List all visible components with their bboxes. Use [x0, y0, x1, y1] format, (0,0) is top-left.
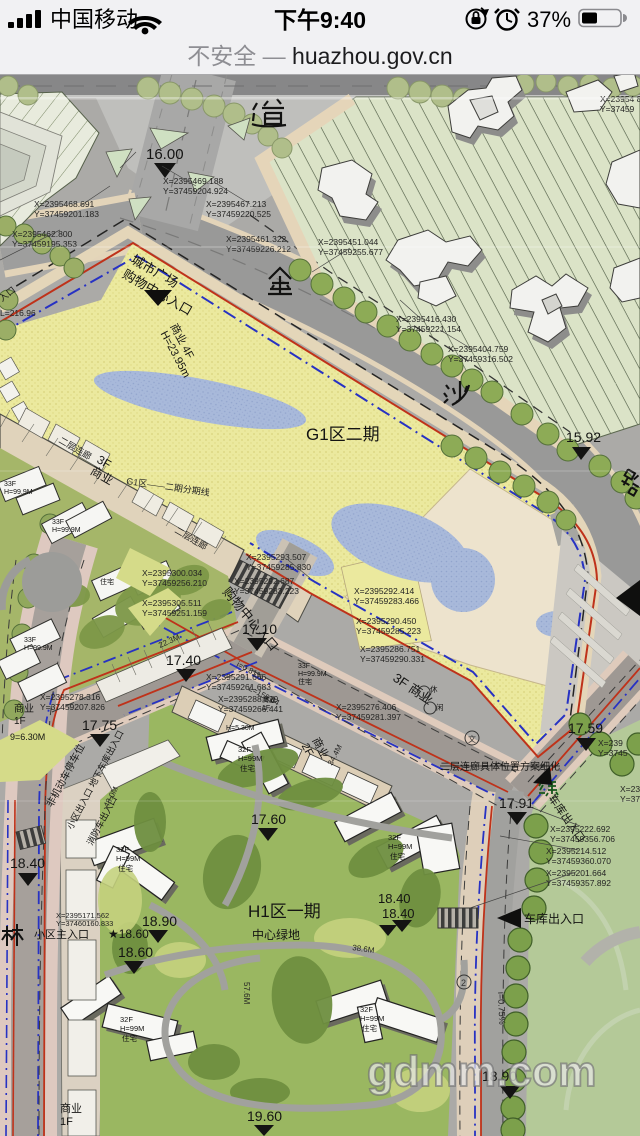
- svg-text:37%: 37%: [527, 7, 571, 32]
- svg-text:中国移动: 中国移动: [50, 7, 138, 32]
- svg-text:下午9:40: 下午9:40: [274, 7, 366, 33]
- svg-text:不安全 — huazhou.gov.cn: 不安全 — huazhou.gov.cn: [187, 43, 452, 69]
